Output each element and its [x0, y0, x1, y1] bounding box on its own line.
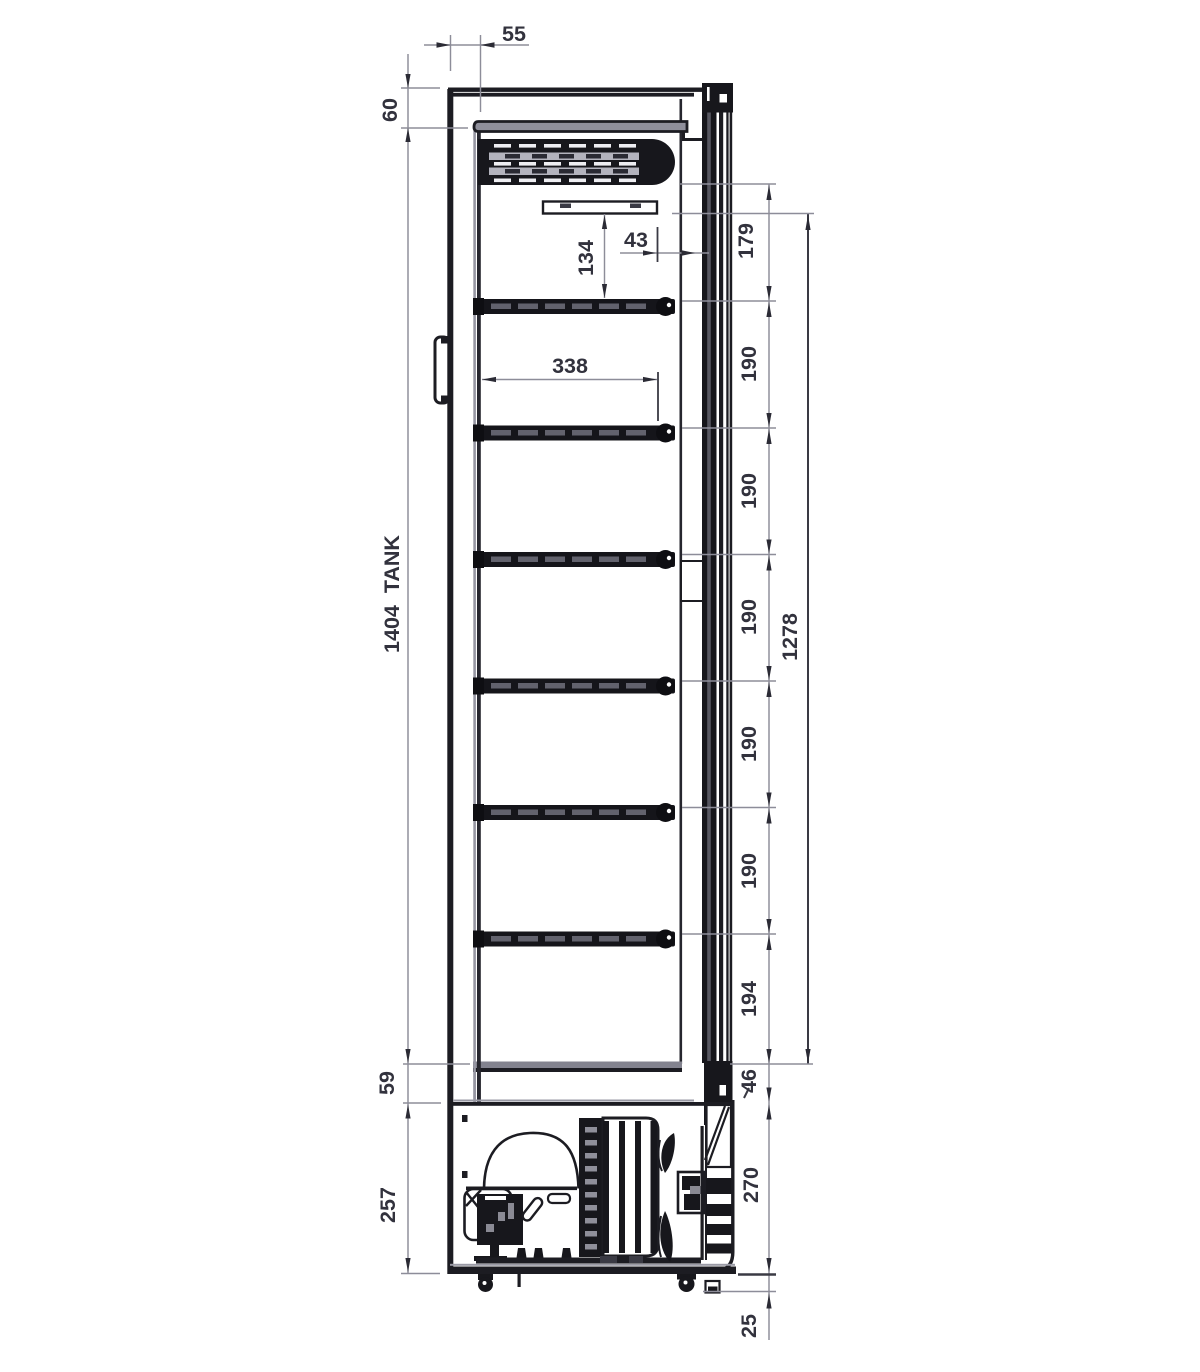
svg-text:1278: 1278 [778, 613, 802, 661]
svg-text:257: 257 [376, 1187, 400, 1223]
svg-text:338: 338 [552, 354, 588, 378]
svg-text:43: 43 [624, 228, 648, 252]
svg-text:190: 190 [737, 726, 761, 762]
svg-text:190: 190 [737, 853, 761, 889]
svg-text:60: 60 [378, 98, 402, 122]
svg-text:270: 270 [739, 1167, 763, 1203]
svg-text:190: 190 [737, 599, 761, 635]
svg-text:55: 55 [502, 22, 526, 46]
svg-text:194: 194 [737, 981, 761, 1017]
svg-text:179: 179 [734, 223, 758, 259]
svg-text:190: 190 [737, 346, 761, 382]
svg-text:59: 59 [375, 1071, 399, 1095]
svg-text:134: 134 [574, 240, 598, 276]
svg-text:1404 TANK: 1404 TANK [380, 535, 404, 653]
svg-text:46: 46 [737, 1069, 761, 1093]
svg-text:190: 190 [737, 473, 761, 509]
svg-text:25: 25 [737, 1314, 761, 1338]
